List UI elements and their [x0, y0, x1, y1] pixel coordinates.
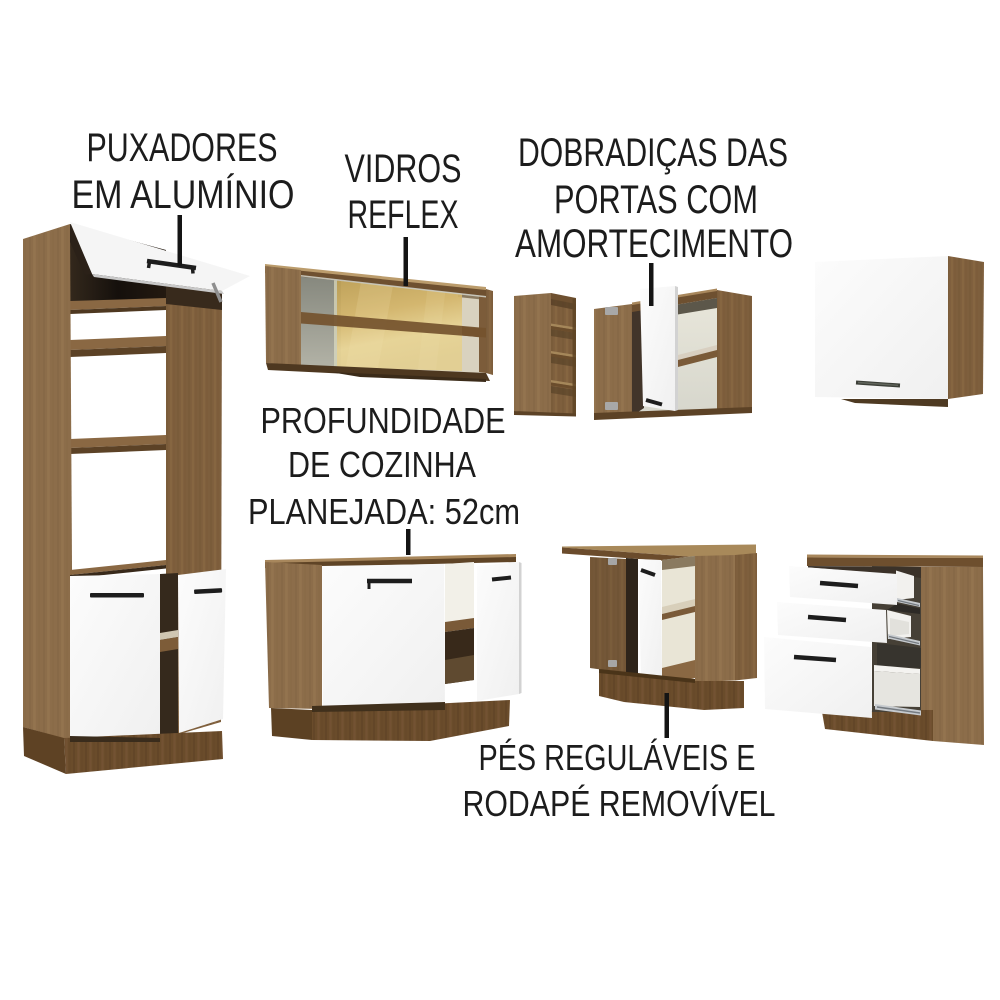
svg-text:PÉS REGULÁVEIS E: PÉS REGULÁVEIS E [479, 737, 756, 778]
svg-text:VIDROS: VIDROS [345, 147, 462, 191]
svg-text:DOBRADIÇAS DAS: DOBRADIÇAS DAS [518, 131, 788, 175]
svg-text:EM ALUMÍNIO: EM ALUMÍNIO [72, 172, 295, 217]
svg-text:PROFUNDIDADE: PROFUNDIDADE [261, 400, 506, 441]
svg-text:PORTAS COM: PORTAS COM [554, 178, 758, 222]
svg-text:PUXADORES: PUXADORES [87, 126, 278, 170]
svg-text:RODAPÉ REMOVÍVEL: RODAPÉ REMOVÍVEL [463, 783, 776, 824]
svg-text:REFLEX: REFLEX [348, 193, 459, 237]
svg-text:AMORTECIMENTO: AMORTECIMENTO [515, 222, 793, 266]
svg-text:PLANEJADA: 52cm: PLANEJADA: 52cm [248, 491, 520, 532]
svg-text:DE COZINHA: DE COZINHA [288, 444, 476, 485]
